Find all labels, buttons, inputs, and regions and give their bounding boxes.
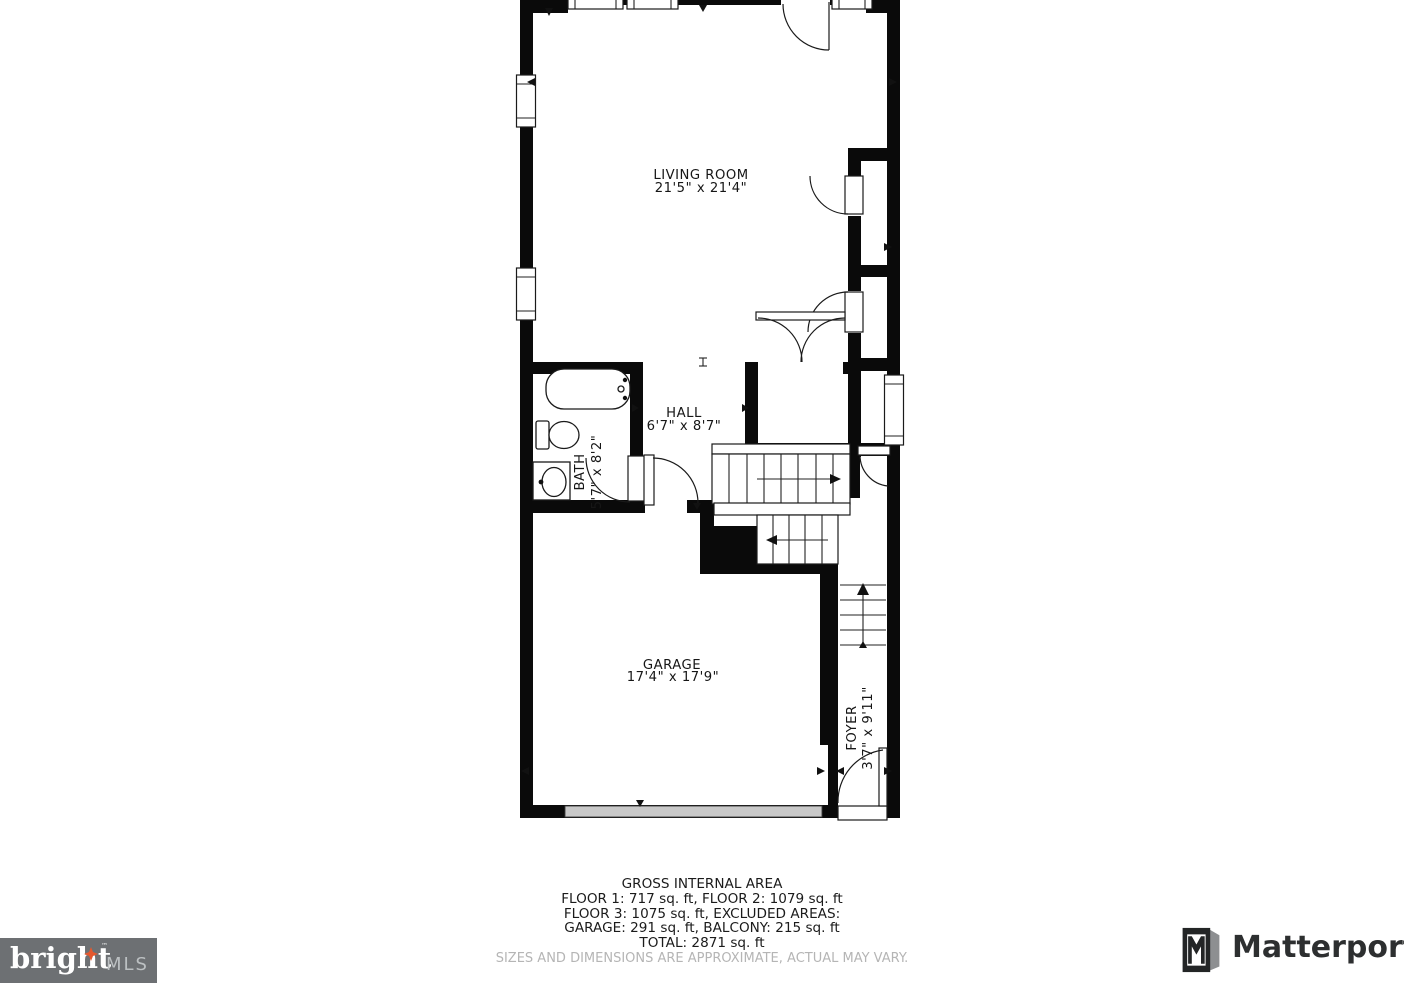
wall-hallcloset-topstub [843, 362, 861, 374]
wall-garage-right-upper [820, 564, 838, 745]
toilet-icon [536, 421, 579, 449]
matterport-wordmark: Matterport [1232, 930, 1404, 965]
garage-door [565, 806, 822, 817]
door-top-entry [783, 2, 829, 50]
area-summary-title: GROSS INTERNAL AREA [0, 877, 1404, 892]
area-summary-line: FLOOR 1: 717 sq. ft, FLOOR 2: 1079 sq. f… [0, 892, 1404, 907]
stair-landing-mid [714, 503, 850, 515]
matterport-icon [1178, 926, 1224, 974]
ibeam-tick [699, 358, 707, 366]
wall-stair-block [700, 526, 757, 574]
window-icon [568, 0, 623, 9]
staircase-foyer [840, 583, 886, 648]
door-closet-1 [810, 176, 863, 214]
window-icon [832, 0, 872, 9]
sink-icon [533, 462, 570, 500]
window-icon [885, 375, 904, 445]
bathtub-icon [546, 369, 630, 409]
window-icon [627, 0, 678, 9]
room-dims-hall: 6'7" x 8'7" [647, 419, 722, 434]
room-label-bath: BATH [573, 453, 588, 490]
room-label-foyer: FOYER [845, 705, 860, 750]
door-foyer-upper [858, 446, 890, 486]
wall-garage-right-lower [828, 745, 838, 805]
doors [565, 2, 890, 820]
door-double-closet [756, 312, 845, 362]
room-dims-foyer: 3'7" x 9'11" [861, 686, 876, 770]
room-dims-garage: 17'4" x 17'9" [627, 670, 719, 685]
stair-landing-upper [712, 444, 850, 454]
bright-tm: ™ [101, 942, 108, 950]
area-summary-line: FLOOR 3: 1075 sq. ft, EXCLUDED AREAS: [0, 907, 1404, 922]
door-hall [644, 455, 698, 505]
room-dims-bath: 5'7" x 8'2" [590, 435, 605, 510]
bright-star-icon [83, 946, 99, 962]
floor-plan: LIVING ROOM 21'5" x 21'4" HALL 6'7" x 8'… [0, 0, 1404, 983]
mls-wordmark: MLS [106, 954, 149, 975]
bright-mls-logo: bright ™ MLS [0, 938, 157, 983]
window-icon [517, 268, 536, 320]
room-dims-living-room: 21'5" x 21'4" [655, 181, 747, 196]
